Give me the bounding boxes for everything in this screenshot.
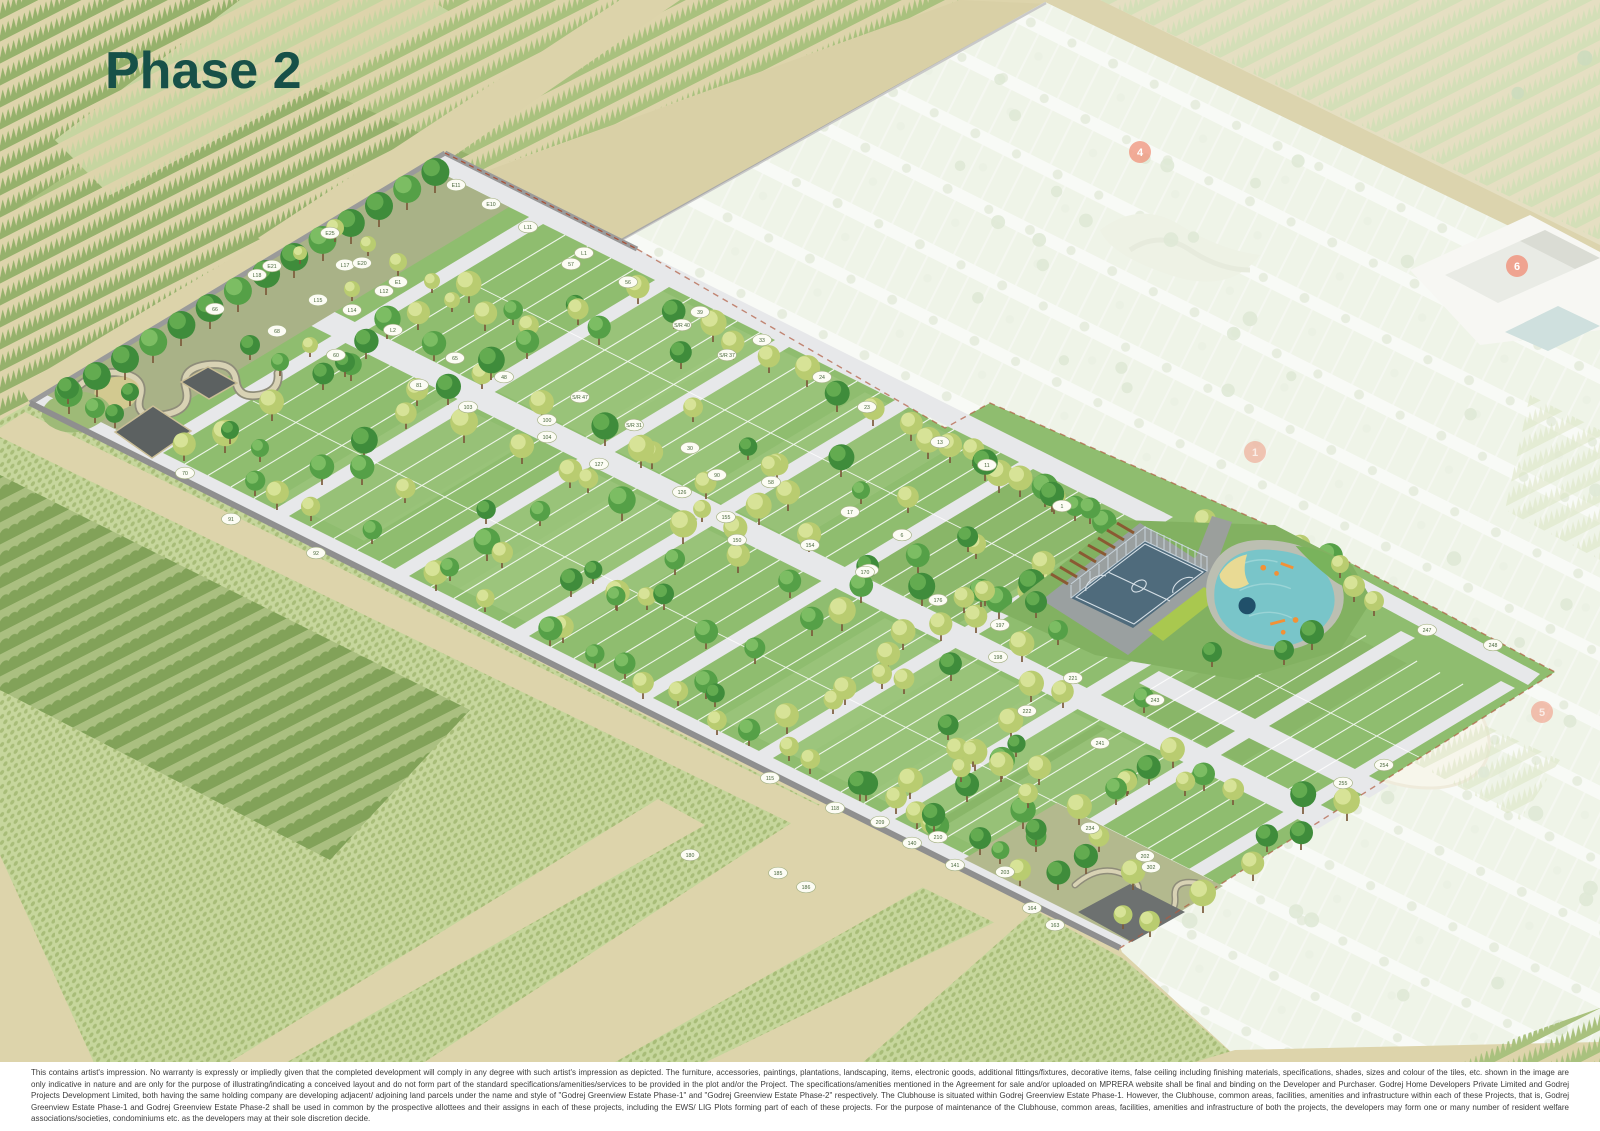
svg-text:100: 100 xyxy=(543,418,552,424)
svg-text:202: 202 xyxy=(1141,854,1150,860)
svg-text:185: 185 xyxy=(774,871,783,877)
svg-text:141: 141 xyxy=(951,863,960,869)
svg-text:66: 66 xyxy=(212,307,218,313)
svg-text:163: 163 xyxy=(1051,923,1060,929)
svg-text:L18: L18 xyxy=(253,273,262,279)
svg-text:E10: E10 xyxy=(486,202,495,208)
svg-text:70: 70 xyxy=(182,471,188,477)
svg-text:E25: E25 xyxy=(325,231,334,237)
svg-text:254: 254 xyxy=(1380,763,1389,769)
svg-text:68: 68 xyxy=(274,329,280,335)
svg-text:248: 248 xyxy=(1489,643,1498,649)
svg-text:L12: L12 xyxy=(380,289,389,295)
svg-text:155: 155 xyxy=(722,515,731,521)
svg-text:247: 247 xyxy=(1423,628,1432,634)
svg-text:48: 48 xyxy=(501,375,507,381)
svg-text:140: 140 xyxy=(908,841,917,847)
svg-text:234: 234 xyxy=(1086,826,1095,832)
svg-text:243: 243 xyxy=(1151,698,1160,704)
svg-text:164: 164 xyxy=(1028,906,1037,912)
svg-text:57: 57 xyxy=(568,262,574,268)
svg-text:210: 210 xyxy=(934,835,943,841)
svg-text:L2: L2 xyxy=(390,328,396,334)
svg-text:92: 92 xyxy=(313,551,319,557)
svg-text:23: 23 xyxy=(864,405,870,411)
svg-text:176: 176 xyxy=(934,598,943,604)
svg-text:33: 33 xyxy=(759,338,765,344)
svg-text:17: 17 xyxy=(847,510,853,516)
svg-text:198: 198 xyxy=(994,655,1003,661)
svg-text:170: 170 xyxy=(861,570,870,576)
svg-text:E11: E11 xyxy=(452,183,461,189)
svg-text:L14: L14 xyxy=(348,308,357,314)
svg-text:11: 11 xyxy=(984,463,989,469)
svg-text:24: 24 xyxy=(819,375,825,381)
svg-text:115: 115 xyxy=(766,776,774,782)
svg-text:6: 6 xyxy=(901,533,904,539)
svg-text:E21: E21 xyxy=(267,264,276,270)
svg-text:203: 203 xyxy=(1001,870,1010,876)
svg-text:E1: E1 xyxy=(395,280,401,286)
svg-text:154: 154 xyxy=(806,543,815,549)
svg-text:60: 60 xyxy=(333,353,339,359)
svg-text:241: 241 xyxy=(1096,741,1105,747)
svg-text:13: 13 xyxy=(937,440,943,446)
svg-text:127: 127 xyxy=(595,462,604,468)
svg-text:4: 4 xyxy=(1137,147,1144,159)
svg-text:1: 1 xyxy=(1061,504,1064,510)
svg-text:S/R 37: S/R 37 xyxy=(719,353,735,359)
svg-text:1: 1 xyxy=(1252,447,1258,459)
svg-text:Phase 2: Phase 2 xyxy=(105,42,302,100)
svg-text:L1: L1 xyxy=(581,251,587,257)
svg-text:81: 81 xyxy=(416,383,422,389)
svg-text:5: 5 xyxy=(1539,707,1545,719)
svg-text:118: 118 xyxy=(831,806,839,812)
svg-text:65: 65 xyxy=(452,356,458,362)
svg-text:S/R 31: S/R 31 xyxy=(626,423,642,429)
svg-text:186: 186 xyxy=(802,885,811,891)
svg-text:L15: L15 xyxy=(314,298,323,304)
svg-text:S/R 47: S/R 47 xyxy=(572,395,588,401)
svg-text:209: 209 xyxy=(876,820,885,826)
svg-text:104: 104 xyxy=(543,435,552,441)
svg-text:126: 126 xyxy=(678,490,687,496)
svg-text:E20: E20 xyxy=(357,261,366,267)
svg-text:L11: L11 xyxy=(524,225,532,231)
svg-text:58: 58 xyxy=(768,480,774,486)
svg-text:39: 39 xyxy=(697,310,703,316)
svg-text:30: 30 xyxy=(687,446,693,452)
svg-text:222: 222 xyxy=(1023,709,1032,715)
svg-text:302: 302 xyxy=(1147,865,1156,871)
svg-text:221: 221 xyxy=(1069,676,1078,682)
svg-text:S/R 40: S/R 40 xyxy=(674,323,690,329)
svg-text:91: 91 xyxy=(228,517,234,523)
svg-text:L17: L17 xyxy=(341,263,350,269)
svg-text:255: 255 xyxy=(1339,781,1348,787)
svg-text:6: 6 xyxy=(1514,261,1520,273)
svg-text:180: 180 xyxy=(686,853,695,859)
svg-text:90: 90 xyxy=(714,473,720,479)
svg-text:103: 103 xyxy=(464,405,473,411)
svg-text:197: 197 xyxy=(996,623,1005,629)
svg-text:56: 56 xyxy=(625,280,631,286)
svg-text:150: 150 xyxy=(733,538,742,544)
